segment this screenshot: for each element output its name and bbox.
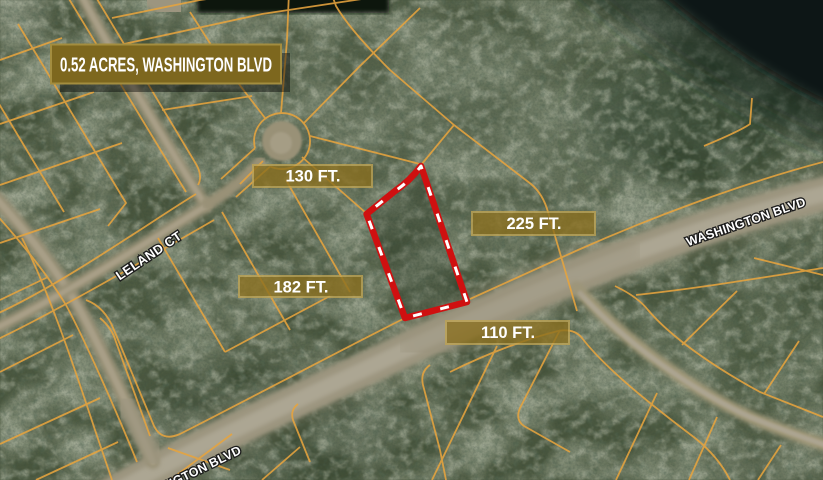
svg-text:225 FT.: 225 FT. [506, 215, 561, 233]
svg-text:130 FT.: 130 FT. [285, 168, 340, 186]
svg-text:110 FT.: 110 FT. [481, 324, 535, 342]
svg-text:0.52 ACRES, WASHINGTON BLVD: 0.52 ACRES, WASHINGTON BLVD [60, 55, 272, 77]
svg-text:182 FT.: 182 FT. [273, 279, 328, 297]
